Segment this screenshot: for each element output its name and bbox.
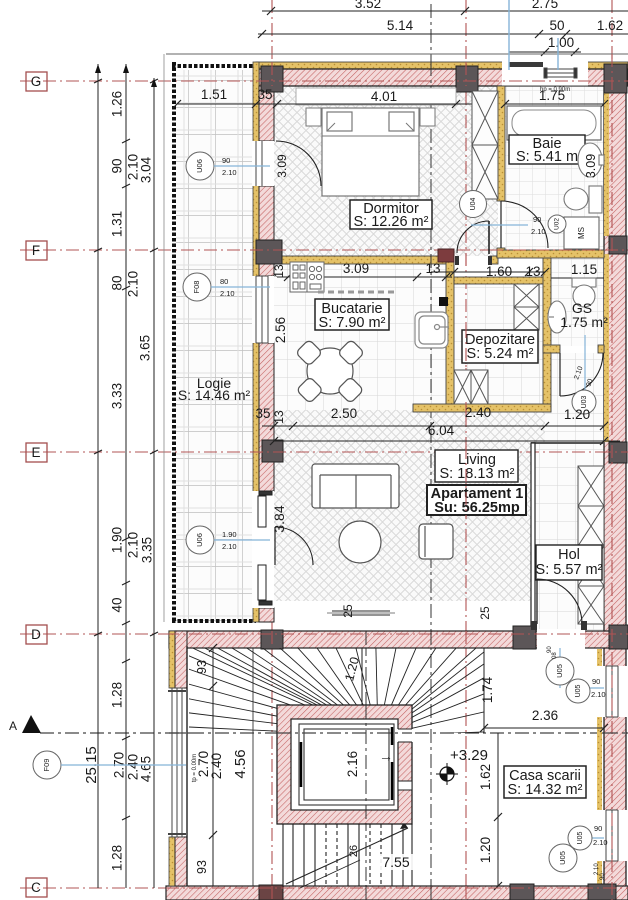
svg-text:1.20: 1.20	[564, 407, 590, 422]
svg-text:2.10: 2.10	[220, 289, 235, 298]
svg-text:2.40: 2.40	[209, 753, 224, 779]
svg-text:2.10: 2.10	[531, 227, 546, 236]
svg-text:1.62: 1.62	[597, 18, 623, 33]
svg-text:1.75: 1.75	[539, 88, 565, 103]
svg-text:U05: U05	[575, 684, 582, 697]
svg-text:2.10: 2.10	[591, 690, 606, 699]
svg-text:1.26: 1.26	[110, 91, 125, 117]
svg-text:26: 26	[348, 845, 360, 857]
svg-text:1.51: 1.51	[201, 87, 227, 102]
svg-text:1.20: 1.20	[478, 837, 493, 863]
svg-text:08: 08	[552, 652, 558, 659]
svg-text:1.60: 1.60	[486, 264, 512, 279]
svg-text:80: 80	[110, 275, 125, 290]
svg-text:1.31: 1.31	[110, 211, 125, 237]
svg-text:3.09: 3.09	[275, 154, 289, 178]
svg-text:90: 90	[547, 646, 553, 653]
svg-text:25: 25	[478, 606, 492, 620]
svg-text:40: 40	[110, 597, 125, 612]
svg-text:93: 93	[195, 860, 209, 874]
svg-text:G: G	[31, 74, 42, 89]
svg-text:A: A	[9, 719, 17, 733]
svg-text:1.74: 1.74	[480, 676, 495, 703]
svg-text:MS: MS	[577, 227, 586, 239]
svg-text:2.50: 2.50	[331, 406, 357, 421]
svg-text:13: 13	[525, 264, 540, 279]
svg-text:90: 90	[110, 158, 125, 173]
svg-text:3.04: 3.04	[139, 156, 154, 183]
svg-text:2.16: 2.16	[345, 751, 360, 777]
svg-text:90: 90	[222, 156, 230, 165]
svg-text:13: 13	[425, 261, 440, 276]
svg-text:U06: U06	[195, 159, 204, 173]
svg-text:F: F	[32, 243, 40, 258]
svg-text:2.10: 2.10	[593, 838, 608, 847]
svg-text:1.90: 1.90	[222, 530, 237, 539]
svg-text:S: 5.41 m: S: 5.41 m	[516, 149, 578, 165]
svg-text:2.10: 2.10	[222, 542, 237, 551]
svg-text:S: 12.26 m²: S: 12.26 m²	[354, 214, 429, 230]
svg-text:3.33: 3.33	[110, 383, 125, 409]
svg-text:90: 90	[594, 824, 602, 833]
svg-text:3.65: 3.65	[138, 335, 153, 361]
svg-text:1.75 m²: 1.75 m²	[560, 314, 608, 330]
svg-text:D: D	[31, 627, 41, 642]
svg-text:2.40: 2.40	[465, 405, 491, 420]
svg-text:Hol: Hol	[558, 547, 580, 563]
svg-text:2.10: 2.10	[126, 271, 141, 297]
svg-text:3.52: 3.52	[355, 0, 381, 11]
svg-text:80: 80	[220, 277, 228, 286]
svg-text:6.04: 6.04	[428, 423, 455, 438]
svg-text:4.01: 4.01	[371, 89, 397, 104]
svg-text:U05: U05	[555, 664, 564, 678]
svg-text:Su: 56.25mp: Su: 56.25mp	[434, 500, 520, 516]
svg-text:50: 50	[549, 18, 564, 33]
svg-text:93: 93	[195, 660, 209, 674]
svg-text:→: →	[379, 748, 393, 764]
svg-text:S: 5.57 m²: S: 5.57 m²	[536, 562, 603, 578]
svg-text:35: 35	[257, 87, 272, 102]
svg-text:2.10: 2.10	[126, 532, 141, 558]
svg-text:4.65: 4.65	[139, 756, 154, 782]
svg-text:U05: U05	[558, 851, 567, 865]
svg-text:3.35: 3.35	[140, 537, 155, 563]
svg-text:1.28: 1.28	[110, 682, 125, 708]
svg-text:4.56: 4.56	[232, 749, 249, 778]
svg-text:U06: U06	[195, 533, 204, 547]
svg-text:1.15: 1.15	[571, 262, 597, 277]
svg-text:3.09: 3.09	[343, 261, 369, 276]
svg-text:S: 5.24 m²: S: 5.24 m²	[467, 346, 534, 362]
svg-text:2.36: 2.36	[532, 708, 558, 723]
svg-text:5.14: 5.14	[387, 18, 414, 33]
svg-text:90: 90	[533, 215, 541, 224]
svg-text:7.55: 7.55	[382, 854, 409, 870]
svg-text:13: 13	[272, 410, 286, 424]
svg-text:1.62: 1.62	[478, 764, 493, 790]
svg-text:1.00: 1.00	[548, 35, 574, 50]
svg-text:E: E	[31, 445, 40, 460]
svg-text:S: 7.90 m²: S: 7.90 m²	[319, 315, 386, 331]
svg-text:3.09: 3.09	[584, 154, 598, 178]
svg-text:25: 25	[341, 604, 355, 618]
svg-text:2.10: 2.10	[594, 863, 600, 875]
svg-text:S: 18.13 m²: S: 18.13 m²	[440, 466, 515, 482]
svg-text:90: 90	[600, 873, 606, 880]
svg-text:S: 14.46 m²: S: 14.46 m²	[178, 387, 251, 403]
svg-text:U05: U05	[577, 831, 584, 844]
svg-text:S: 14.32 m²: S: 14.32 m²	[508, 782, 583, 798]
svg-text:U04: U04	[470, 197, 477, 210]
svg-text:2.10: 2.10	[222, 168, 237, 177]
svg-text:3.84: 3.84	[271, 505, 287, 532]
svg-text:35: 35	[255, 406, 270, 421]
svg-text:F08: F08	[192, 281, 201, 294]
svg-text:1.28: 1.28	[110, 845, 125, 871]
svg-text:F09: F09	[42, 759, 51, 772]
svg-text:1.90: 1.90	[110, 527, 125, 553]
svg-text:+3.29: +3.29	[450, 747, 488, 764]
svg-text:90: 90	[592, 677, 600, 686]
svg-text:13: 13	[272, 264, 286, 278]
svg-text:C: C	[31, 880, 41, 895]
svg-text:2.56: 2.56	[273, 317, 288, 343]
svg-text:2.75: 2.75	[532, 0, 558, 11]
svg-text:U02: U02	[554, 218, 561, 230]
